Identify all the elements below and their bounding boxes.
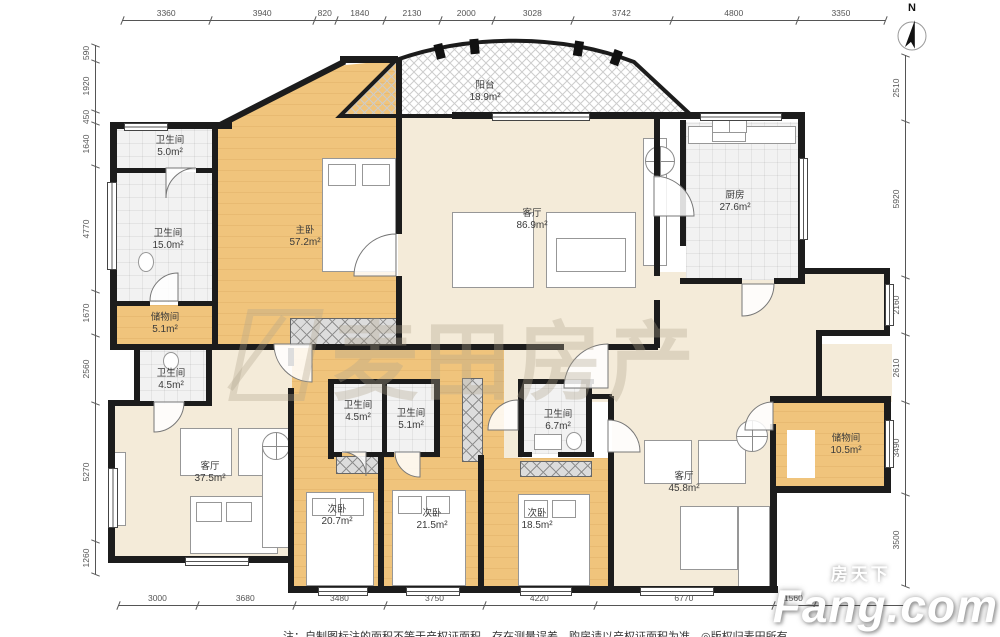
wall <box>116 301 150 306</box>
ruler-mark <box>382 16 386 25</box>
window <box>108 468 118 528</box>
wardrobe-hatch-master <box>290 318 400 346</box>
dimension-label: 2610 <box>891 358 901 377</box>
window <box>700 113 782 121</box>
dimension-label: 1920 <box>81 76 91 95</box>
wall <box>518 452 532 457</box>
wall <box>288 348 294 366</box>
room-label-master: 主卧57.2m² <box>289 225 320 249</box>
ruler-mark <box>669 16 673 25</box>
window <box>406 587 460 596</box>
room-label-living-ll: 客厅37.5m² <box>194 461 225 485</box>
window <box>124 123 168 131</box>
wall <box>116 168 166 173</box>
ruler-mark <box>91 109 100 113</box>
ruler-mark <box>901 492 910 496</box>
window <box>885 284 894 326</box>
duct-hatch-mid <box>462 378 483 462</box>
room-label-bed2: 次卧21.5m² <box>416 508 447 532</box>
wall <box>608 452 614 592</box>
storage-right-notch <box>787 430 815 478</box>
wall <box>178 301 212 306</box>
wall <box>288 388 294 562</box>
ruler-mark <box>209 16 213 25</box>
bath-m3-toilet <box>566 432 582 450</box>
wall <box>434 381 440 457</box>
wall <box>396 58 402 234</box>
ruler-mark <box>91 573 100 577</box>
fan-icon-ll <box>262 432 290 460</box>
room-label-balcony: 阳台18.9m² <box>469 80 500 104</box>
ruler-mark <box>901 332 910 336</box>
ruler-mark <box>91 334 100 338</box>
room-label-bath-m1: 卫生间4.5m² <box>344 400 373 424</box>
ruler-mark <box>883 16 887 25</box>
bath-left-toilet <box>138 252 154 272</box>
wall <box>770 396 890 403</box>
wall <box>680 120 686 246</box>
window <box>640 587 714 596</box>
ruler-mark <box>91 290 100 294</box>
ruler-mark <box>384 601 388 610</box>
lr-table <box>680 506 738 570</box>
room-label-bath-m2: 卫生间5.1m² <box>397 408 426 432</box>
dimension-label: 3742 <box>612 8 631 18</box>
wall <box>770 486 890 493</box>
dimension-label: 3028 <box>523 8 542 18</box>
window <box>318 587 368 596</box>
wall <box>396 344 564 350</box>
disclaimer-note: 注：自制图标注的面积不等于产权证面积，存在测量误差，购房请以产权证面积为准。◎版… <box>283 628 788 637</box>
ruler-mark <box>482 601 486 610</box>
dimension-label: 820 <box>318 8 332 18</box>
ruler-mark <box>91 59 100 63</box>
wall <box>558 452 594 457</box>
wall <box>110 344 218 350</box>
wall <box>378 456 384 588</box>
wall <box>134 346 140 406</box>
wall <box>328 452 342 457</box>
dimension-label: 3680 <box>236 593 255 603</box>
wall <box>312 344 402 350</box>
window <box>185 557 249 566</box>
compass-north-label: N <box>890 2 934 14</box>
room-label-storage-r: 储物间10.5m² <box>830 433 861 457</box>
room-label-living-r: 客厅45.8m² <box>668 471 699 495</box>
wall <box>420 452 440 457</box>
wall <box>818 330 890 336</box>
dimension-label: 2510 <box>891 79 901 98</box>
dimension-label: 2560 <box>81 360 91 379</box>
ll-pillow-1 <box>196 502 222 522</box>
window <box>492 113 590 121</box>
ruler-mark <box>593 601 597 610</box>
wall <box>206 346 212 406</box>
dimension-label: 3940 <box>253 8 272 18</box>
compass-icon <box>890 14 934 58</box>
wall <box>340 56 398 63</box>
wall <box>654 118 660 178</box>
room-label-bath-ll: 卫生间4.5m² <box>157 368 186 392</box>
dimension-label: 450 <box>81 110 91 124</box>
wall <box>608 344 658 350</box>
ruler-mark <box>91 401 100 405</box>
dimension-label: 3360 <box>157 8 176 18</box>
dimension-label: 3500 <box>891 531 901 550</box>
dimension-label: 4800 <box>724 8 743 18</box>
dimension-label: 3000 <box>148 593 167 603</box>
bath-m3-sink <box>534 434 562 450</box>
ruler-mark <box>571 16 575 25</box>
dimension-label: 5270 <box>81 463 91 482</box>
wall <box>654 216 660 276</box>
wall <box>586 394 612 399</box>
wall <box>382 381 387 457</box>
compass: N <box>890 2 934 63</box>
room-label-kitchen: 厨房27.6m² <box>719 190 750 214</box>
ruler-mark <box>91 121 100 125</box>
ruler-mark <box>292 601 296 610</box>
dimension-label: 2130 <box>402 8 421 18</box>
window <box>107 182 117 270</box>
ruler-mark <box>334 16 338 25</box>
corridor-right-floor2 <box>658 334 818 400</box>
window <box>885 420 894 468</box>
dimension-label: 1840 <box>350 8 369 18</box>
wall <box>798 268 890 274</box>
ruler-mark <box>491 16 495 25</box>
lr-sofa <box>738 506 770 590</box>
room-label-living-main: 客厅86.9m² <box>516 208 547 232</box>
room-label-bath-m3: 卫生间6.7m² <box>544 409 573 433</box>
ruler-mark <box>122 20 885 21</box>
ruler-mark <box>91 540 100 544</box>
wall <box>680 278 742 284</box>
dimension-label: 5920 <box>891 189 901 208</box>
ruler-mark <box>901 119 910 123</box>
master-pillow-1 <box>328 164 356 186</box>
dimension-label: 2000 <box>457 8 476 18</box>
lr-rug-2 <box>698 440 746 484</box>
ruler-mark <box>91 43 100 47</box>
wall <box>586 379 592 457</box>
wall <box>608 396 614 420</box>
ruler-mark <box>95 45 96 574</box>
ll-cabinet <box>262 446 290 548</box>
wall <box>518 379 594 384</box>
dimension-label: 590 <box>81 46 91 60</box>
ruler-mark <box>901 275 910 279</box>
wall <box>478 455 484 588</box>
wall <box>196 168 212 173</box>
ll-pillow-2 <box>226 502 252 522</box>
room-label-bed3: 次卧18.5m² <box>521 508 552 532</box>
wall <box>518 379 524 457</box>
fan-icon-living <box>645 146 675 176</box>
wall <box>396 276 402 348</box>
dimension-label: 1670 <box>81 304 91 323</box>
room-label-bath-tl: 卫生间5.0m² <box>156 135 185 159</box>
bed3-pillow-2 <box>552 500 576 518</box>
wall <box>366 452 394 457</box>
living-sofa-bottom <box>556 238 626 272</box>
dimension-label: 3350 <box>831 8 850 18</box>
dimension-label: 4770 <box>81 219 91 238</box>
room-label-bath-left: 卫生间15.0m² <box>152 228 183 252</box>
wall <box>654 300 660 348</box>
dimension-label: 1640 <box>81 135 91 154</box>
ruler-mark <box>905 55 906 586</box>
wall <box>218 344 274 350</box>
brand-logo-en: Fang.com <box>773 583 998 629</box>
wall <box>328 379 334 459</box>
window <box>520 587 572 596</box>
window <box>799 158 808 240</box>
ruler-mark <box>120 16 124 25</box>
room-label-bed1: 次卧20.7m² <box>321 504 352 528</box>
master-pillow-2 <box>362 164 390 186</box>
ruler-mark <box>438 16 442 25</box>
room-label-storage-left: 储物间5.1m² <box>151 312 180 336</box>
ruler-mark <box>195 601 199 610</box>
wall <box>134 401 154 406</box>
wall <box>774 278 805 284</box>
wall <box>184 401 212 406</box>
hatch-under-bath3 <box>520 461 592 477</box>
ruler-mark <box>91 164 100 168</box>
dimension-label: 1260 <box>81 548 91 567</box>
fan-icon-lr <box>736 420 768 452</box>
hatch-under-bath1 <box>336 456 382 474</box>
ruler-mark <box>116 601 120 610</box>
brand-logo: 房天下 Fang.com <box>773 566 998 629</box>
floor-plan-canvas: 卫生间5.0m² 卫生间15.0m² 储物间5.1m² 主卧57.2m² 阳台1… <box>0 0 1000 637</box>
wall <box>816 330 822 400</box>
wall <box>770 424 776 488</box>
ruler-mark <box>795 16 799 25</box>
ruler-mark <box>312 16 316 25</box>
ruler-mark <box>901 401 910 405</box>
wall <box>212 122 218 350</box>
